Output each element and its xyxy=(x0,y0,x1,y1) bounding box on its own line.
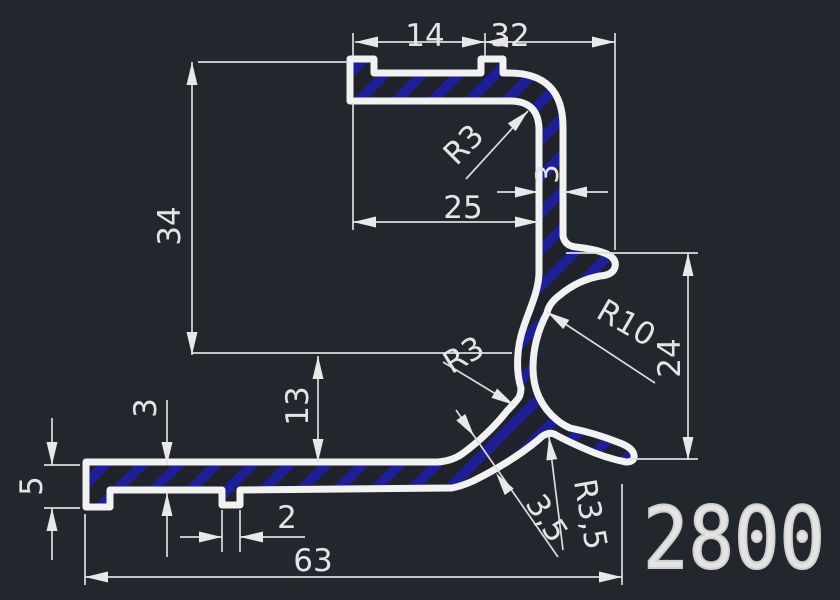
dim-text-34: 34 xyxy=(152,206,188,245)
dim-text-13: 13 xyxy=(280,386,316,425)
dim-text-32: 32 xyxy=(490,18,529,54)
radius-text-r10: R10 xyxy=(591,293,662,355)
part-number-label: 2800 xyxy=(643,489,825,589)
cad-drawing-canvas: 14 32 34 25 3 13 3 5 2 63 24 R3 R3 R10 3… xyxy=(0,0,840,600)
dim-text-3-flange: 3 xyxy=(128,398,164,418)
profile-outline xyxy=(86,59,634,507)
profile-drawing-svg: 14 32 34 25 3 13 3 5 2 63 24 R3 R3 R10 3… xyxy=(0,0,840,600)
dim-text-5: 5 xyxy=(14,476,50,496)
dim-text-24: 24 xyxy=(652,338,688,377)
dim-text-2: 2 xyxy=(277,500,297,536)
dim-text-3-wall: 3 xyxy=(530,164,566,184)
radius-text-r3-top: R3 xyxy=(437,118,492,173)
thickness-text-3-5: 3,5 xyxy=(518,488,575,549)
radius-text-r3-web: R3 xyxy=(437,329,491,381)
dim-text-25: 25 xyxy=(443,190,482,226)
dim-text-63: 63 xyxy=(293,543,332,579)
radius-text-r3-5: R3,5 xyxy=(566,476,614,552)
profile-section xyxy=(86,59,634,507)
dim-text-14: 14 xyxy=(405,18,444,54)
